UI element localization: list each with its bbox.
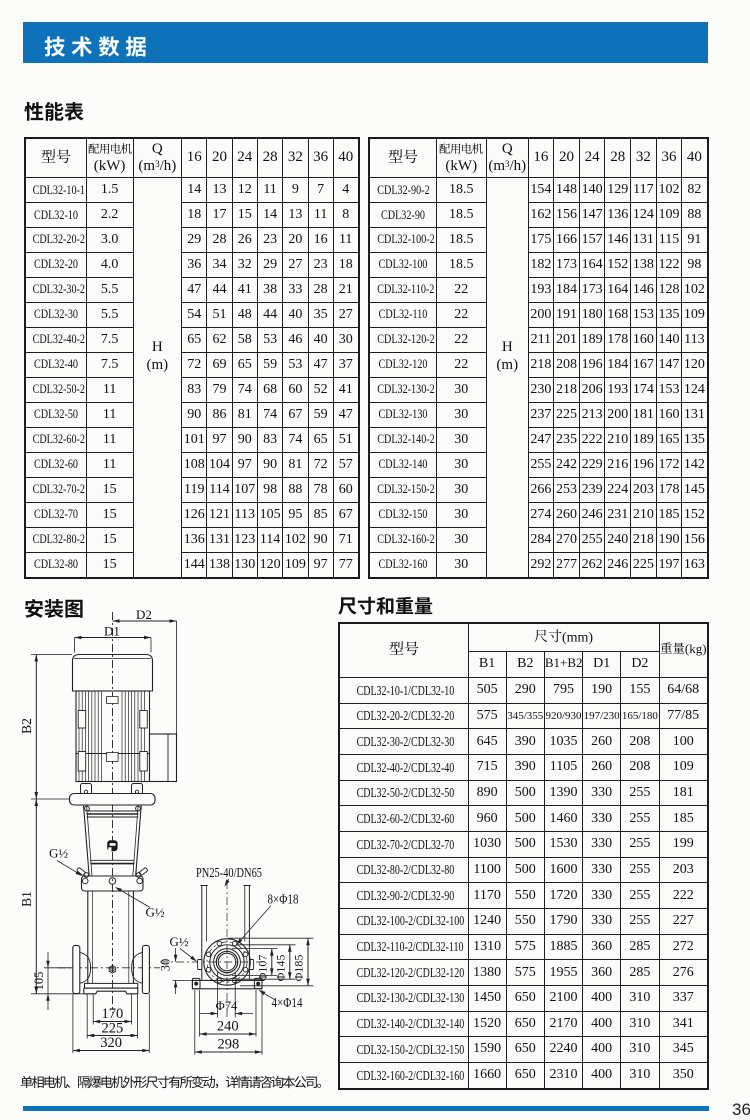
svg-text:B1: B1 [19, 891, 34, 907]
svg-text:B2: B2 [19, 718, 34, 734]
svg-text:D2: D2 [136, 607, 152, 622]
svg-text:320: 320 [100, 1035, 122, 1051]
svg-text:G½: G½ [49, 846, 68, 861]
svg-text:4×Φ14: 4×Φ14 [272, 995, 303, 1010]
svg-text:PN25-40/DN65: PN25-40/DN65 [196, 865, 262, 880]
svg-text:8×Φ18: 8×Φ18 [268, 892, 299, 907]
svg-text:30: 30 [159, 959, 173, 972]
svg-text:298: 298 [218, 1037, 240, 1053]
svg-text:105: 105 [32, 972, 46, 991]
svg-text:Φ185: Φ185 [292, 955, 306, 982]
svg-text:Φ107: Φ107 [255, 955, 269, 982]
svg-text:D1: D1 [104, 624, 120, 639]
svg-text:G½: G½ [170, 934, 189, 949]
svg-text:Φ74: Φ74 [216, 999, 238, 1013]
svg-text:240: 240 [217, 1019, 239, 1035]
svg-text:Φ145: Φ145 [273, 955, 287, 982]
